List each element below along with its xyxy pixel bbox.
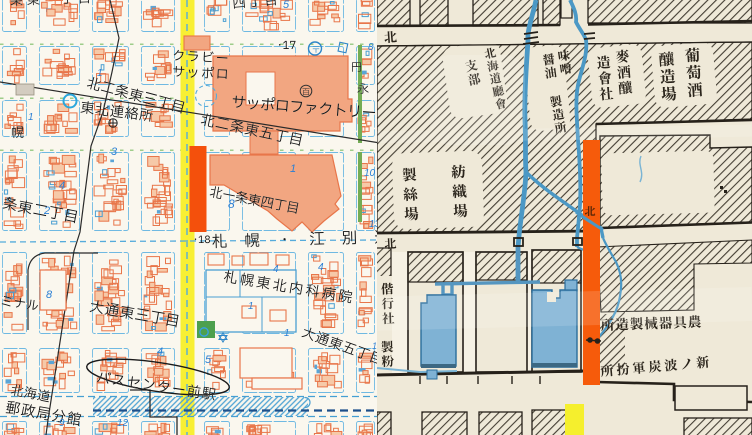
svg-text:1: 1: [290, 163, 296, 175]
svg-text:4: 4: [318, 262, 324, 273]
svg-text:1: 1: [248, 301, 254, 312]
svg-text:1: 1: [284, 328, 290, 339]
svg-text:1: 1: [97, 68, 103, 79]
svg-text:8: 8: [46, 289, 53, 301]
svg-text:4: 4: [157, 346, 163, 358]
svg-text:10: 10: [364, 168, 376, 179]
svg-text:1: 1: [28, 112, 34, 123]
svg-text:5: 5: [283, 0, 290, 11]
svg-text:8: 8: [368, 42, 374, 53]
svg-text:4: 4: [273, 264, 279, 275]
svg-text:2: 2: [43, 205, 50, 217]
svg-text:9: 9: [59, 418, 65, 429]
svg-text:3: 3: [111, 146, 118, 158]
svg-text:4: 4: [59, 180, 65, 192]
svg-text:8: 8: [228, 197, 235, 211]
svg-text:5: 5: [205, 354, 212, 366]
svg-text:12: 12: [117, 418, 129, 429]
